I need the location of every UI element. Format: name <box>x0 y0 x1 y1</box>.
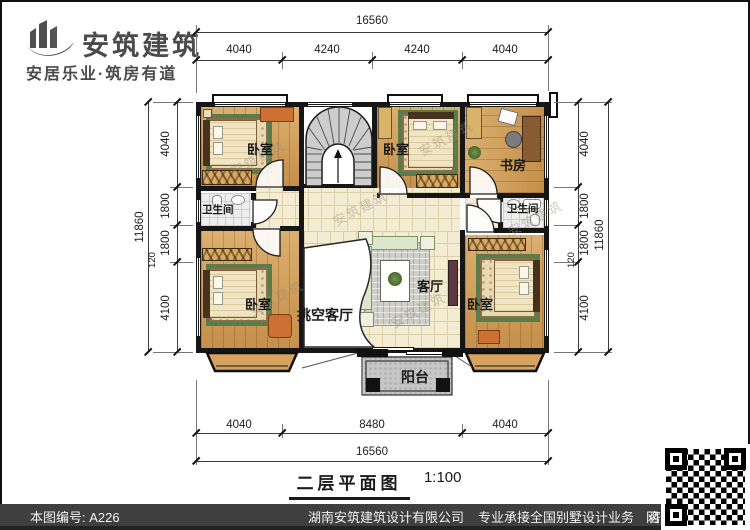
room-label-bedroom-tm: 卧室 <box>383 139 409 158</box>
footer-service: 专业承接全国别墅设计业务 <box>478 507 634 526</box>
dim-line <box>196 433 548 434</box>
footer-strip <box>0 526 750 530</box>
room-label-study: 书房 <box>500 155 526 174</box>
room-label-balcony: 阳台 <box>401 367 429 387</box>
dim-line <box>196 32 548 33</box>
dim-left-seg-5: 4100 <box>160 285 172 331</box>
dim-bottom-seg-1: 4040 <box>209 419 269 431</box>
dim-bottom-seg-2: 8480 <box>342 419 402 431</box>
dim-right-total: 11860 <box>594 212 606 258</box>
footer-plan-number: 本图编号: A226 <box>30 507 120 526</box>
drawing-title-row: 二层平面图 1:100 <box>0 469 750 500</box>
dim-left-seg-4: 120 <box>147 245 159 275</box>
dim-line <box>177 102 178 353</box>
footer-company: 湖南安筑建筑设计有限公司 <box>308 507 464 526</box>
dim-left-seg-1: 4040 <box>160 121 172 167</box>
footer-web: 网 <box>646 507 659 526</box>
room-label-bath-left: 卫生间 <box>202 202 234 217</box>
room-label-bedroom-tl: 卧室 <box>247 139 273 158</box>
dim-top-seg-3: 4240 <box>387 44 447 56</box>
void-outline <box>304 239 374 347</box>
dim-left-seg-3: 1800 <box>160 220 172 266</box>
dim-right-seg-4: 120 <box>566 245 578 275</box>
dim-top-seg-2: 4240 <box>297 44 357 56</box>
drawing-scale: 1:100 <box>424 469 462 486</box>
stair-direction-arrow <box>334 149 342 183</box>
ext-line <box>554 352 612 353</box>
footer-bar: 本图编号: A226 湖南安筑建筑设计有限公司 专业承接全国别墅设计业务 咨询电… <box>0 504 750 526</box>
qr-finder <box>665 504 687 526</box>
dim-left-total: 11860 <box>134 204 146 250</box>
dim-line <box>148 102 149 353</box>
qr-code <box>661 444 750 530</box>
dim-top-seg-1: 4040 <box>209 44 269 56</box>
qr-finder <box>724 448 746 470</box>
dim-line <box>608 102 609 353</box>
dim-top-seg-4: 4040 <box>475 44 535 56</box>
ext-line <box>554 102 612 103</box>
dim-bottom-total: 16560 <box>342 446 402 458</box>
dim-top-total: 16560 <box>342 15 402 27</box>
dim-right-seg-1: 4040 <box>579 121 591 167</box>
drawing-title: 二层平面图 <box>289 469 410 500</box>
dim-right-seg-5: 4100 <box>579 285 591 331</box>
ext-line <box>548 380 549 465</box>
qr-finder <box>665 448 687 470</box>
room-label-bedroom-ll: 卧室 <box>245 294 271 313</box>
room-label-bedroom-lr: 卧室 <box>467 294 493 313</box>
ext-line <box>196 380 197 465</box>
room-label-void-living: 挑空客厅 <box>297 305 353 325</box>
dim-line <box>196 461 548 462</box>
dim-bottom-seg-3: 4040 <box>475 419 535 431</box>
room-label-bath-right: 卫生间 <box>507 201 539 216</box>
room-label-living: 客厅 <box>417 276 443 295</box>
floor-plan-page: 安筑建筑 安居乐业·筑房有道 <box>0 0 750 530</box>
